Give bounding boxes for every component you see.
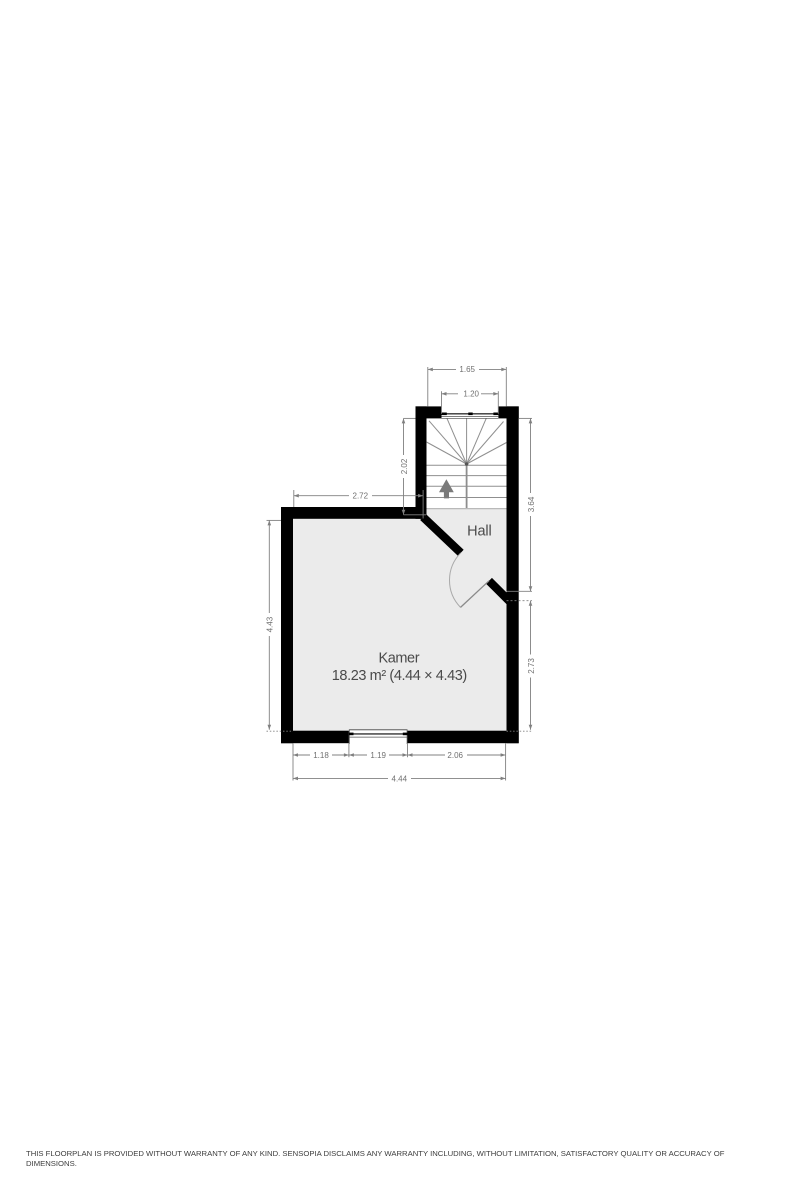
svg-text:2.73: 2.73 [527, 658, 536, 674]
svg-text:1.18: 1.18 [313, 751, 329, 760]
svg-text:1.20: 1.20 [463, 390, 479, 399]
svg-text:18.23 m² (4.44 × 4.43): 18.23 m² (4.44 × 4.43) [332, 668, 467, 684]
svg-text:2.06: 2.06 [447, 751, 463, 760]
svg-text:Hall: Hall [467, 524, 492, 540]
svg-text:2.02: 2.02 [400, 458, 409, 474]
svg-text:1.19: 1.19 [370, 751, 386, 760]
svg-text:Kamer: Kamer [378, 651, 419, 667]
svg-text:1.65: 1.65 [459, 365, 475, 374]
svg-text:4.44: 4.44 [392, 774, 408, 783]
svg-text:4.43: 4.43 [266, 616, 275, 632]
svg-text:2.72: 2.72 [353, 492, 369, 501]
svg-text:3.64: 3.64 [527, 496, 536, 512]
